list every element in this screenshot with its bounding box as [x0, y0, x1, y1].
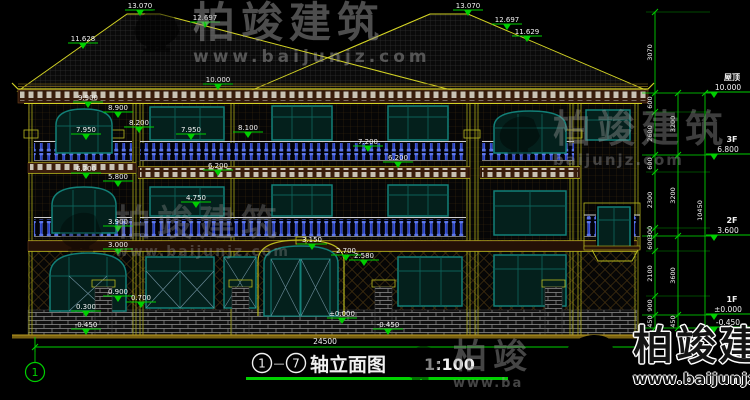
dim-text: 3070 [646, 44, 654, 61]
svg-text:11.629: 11.629 [515, 28, 540, 36]
dim-text: 600 [646, 96, 654, 108]
dim-text: 600 [646, 157, 654, 169]
svg-text:3F: 3F [726, 135, 737, 144]
svg-text:6.200: 6.200 [208, 162, 228, 170]
dim-text: 2300 [646, 192, 654, 209]
dim-text: 10450 [696, 200, 704, 221]
title-scale: 1:100 [424, 355, 475, 374]
svg-text:2.580: 2.580 [354, 252, 374, 260]
svg-text:-0.450: -0.450 [75, 321, 98, 329]
svg-text:8.900: 8.900 [108, 104, 128, 112]
svg-text:6.800: 6.800 [717, 145, 739, 154]
svg-text:5.800: 5.800 [108, 173, 128, 181]
dim-text: 3600 [669, 267, 677, 284]
svg-text:6.200: 6.200 [76, 165, 96, 173]
dim-text: 3200 [669, 116, 677, 133]
svg-text:1F: 1F [726, 295, 737, 304]
svg-text:6.200: 6.200 [388, 154, 408, 162]
dim-text: 450 [669, 315, 677, 327]
svg-text:屋顶: 屋顶 [724, 72, 740, 82]
svg-text:2F: 2F [726, 216, 737, 225]
title-axis-end: 7 [292, 357, 300, 371]
svg-text:-0.450: -0.450 [377, 321, 400, 329]
svg-text:13.070: 13.070 [456, 2, 481, 10]
title-underline [246, 377, 508, 380]
dim-text: 300 [646, 226, 654, 238]
svg-text:3.900: 3.900 [108, 218, 128, 226]
svg-text:11.628: 11.628 [71, 35, 96, 43]
svg-text:8.200: 8.200 [129, 119, 149, 127]
dim-text: 2100 [646, 265, 654, 282]
svg-text:0.900: 0.900 [108, 288, 128, 296]
title-dash: — [274, 357, 285, 370]
svg-text:-0.450: -0.450 [716, 318, 740, 327]
svg-text:±0.000: ±0.000 [329, 310, 355, 318]
elevation-drawing-svg: 13.07012.69711.62813.07012.69711.62910.0… [0, 0, 750, 400]
dim-text: 450 [646, 315, 654, 327]
svg-text:3.150: 3.150 [302, 236, 322, 244]
svg-text:3.000: 3.000 [108, 241, 128, 249]
svg-text:12.697: 12.697 [495, 16, 520, 24]
title-axis-start: 1 [258, 357, 266, 371]
svg-text:1: 1 [32, 366, 39, 379]
svg-text:4.750: 4.750 [186, 194, 206, 202]
svg-text:7.950: 7.950 [76, 126, 96, 134]
svg-text:10.000: 10.000 [206, 76, 231, 84]
dim-text: 600 [646, 237, 654, 249]
svg-text:8.100: 8.100 [238, 124, 258, 132]
cad-canvas: 13.07012.69711.62813.07012.69711.62910.0… [0, 0, 750, 400]
svg-text:12.697: 12.697 [193, 14, 218, 22]
svg-text:13.070: 13.070 [128, 2, 153, 10]
title-text: 轴立面图 [310, 353, 386, 376]
railing-row-upper [34, 142, 574, 161]
svg-text:3.600: 3.600 [717, 226, 739, 235]
dim-text: 3200 [669, 187, 677, 204]
svg-text:0.300: 0.300 [76, 303, 96, 311]
dim-text: 900 [646, 299, 654, 311]
svg-text:7.950: 7.950 [181, 126, 201, 134]
dim-text: 2600 [646, 125, 654, 142]
svg-text:±0.000: ±0.000 [714, 305, 742, 314]
svg-text:10.000: 10.000 [715, 83, 741, 92]
svg-text:7.200: 7.200 [358, 138, 378, 146]
svg-text:9.900: 9.900 [78, 94, 98, 102]
svg-text:24500: 24500 [313, 337, 337, 346]
svg-text:0.700: 0.700 [131, 294, 151, 302]
